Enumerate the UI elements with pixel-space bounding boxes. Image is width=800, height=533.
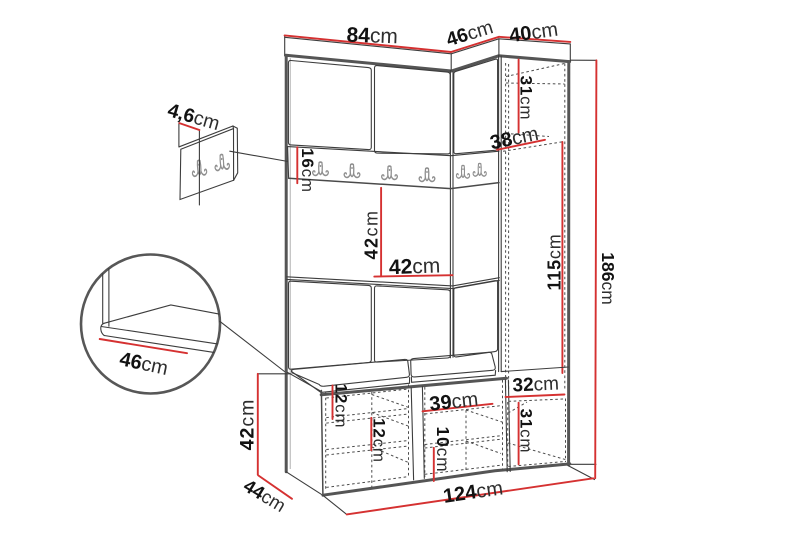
svg-text:10cm: 10cm [433, 426, 453, 472]
svg-text:31cm: 31cm [517, 76, 536, 121]
svg-text:12cm: 12cm [370, 418, 389, 463]
svg-text:12cm: 12cm [331, 384, 350, 429]
svg-text:115cm: 115cm [545, 233, 565, 290]
svg-text:186cm: 186cm [598, 252, 618, 305]
svg-text:32cm: 32cm [512, 374, 559, 397]
svg-text:31cm: 31cm [517, 409, 536, 454]
svg-text:42cm: 42cm [237, 399, 259, 451]
svg-text:42cm: 42cm [362, 209, 382, 259]
svg-text:42cm: 42cm [389, 254, 441, 279]
svg-text:84cm: 84cm [346, 24, 398, 49]
